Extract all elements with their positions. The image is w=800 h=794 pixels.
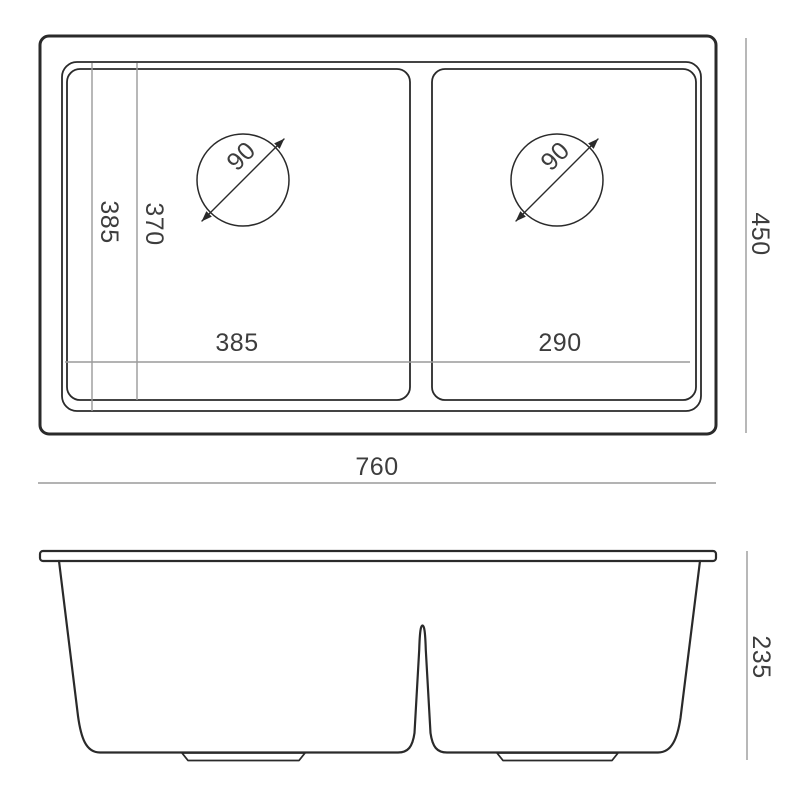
front-body-profile bbox=[59, 561, 700, 753]
dim-label-right-bowl-width: 290 bbox=[538, 329, 581, 357]
dim-label-height: 235 bbox=[747, 635, 775, 678]
right-drain-boss bbox=[497, 753, 618, 761]
left-drain-boss bbox=[182, 753, 305, 761]
dim-label-left-drain-diameter: 90 bbox=[221, 136, 261, 176]
sink-front-view: 235 bbox=[40, 551, 775, 761]
front-rim bbox=[40, 551, 716, 561]
dim-label-overall-width: 760 bbox=[355, 453, 398, 481]
sink-top-view: 385 370 90 90 385 290 450 760 bbox=[38, 36, 774, 483]
sink-technical-drawing: 385 370 90 90 385 290 450 760 235 bbox=[0, 0, 800, 794]
dim-label-overall-depth: 450 bbox=[746, 212, 774, 255]
dim-label-right-drain-diameter: 90 bbox=[535, 136, 575, 176]
dim-label-left-bowl-width: 385 bbox=[215, 329, 258, 357]
dim-label-left-bowl-length: 385 bbox=[95, 200, 123, 243]
dim-label-inner-length: 370 bbox=[140, 202, 168, 245]
